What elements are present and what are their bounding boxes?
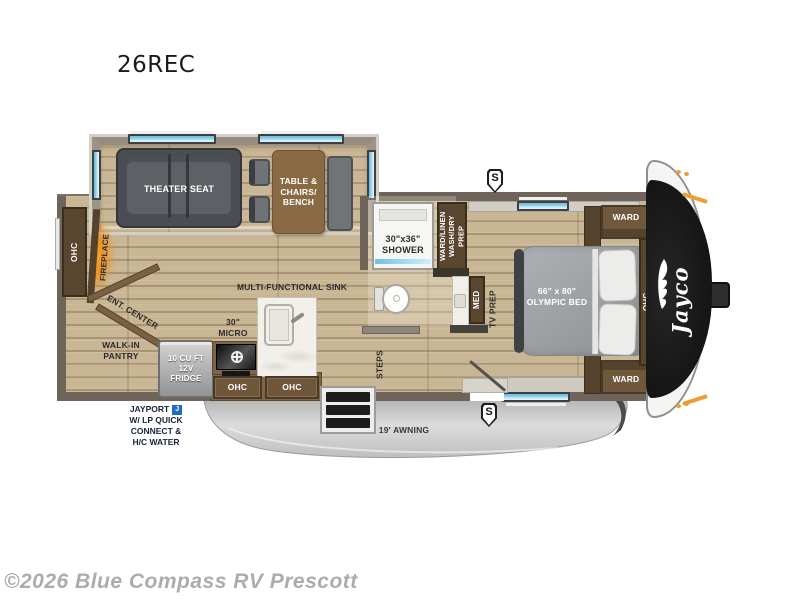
theater-seat-label: THEATER SEAT (118, 184, 240, 195)
dinette-chair (249, 196, 270, 223)
slide-window-1 (128, 134, 216, 144)
dinette-label-line: CHAIRS/ (280, 187, 316, 198)
bed-label-line: OLYMPIC BED (520, 297, 594, 308)
jayport-label-line: W/ LP QUICK (98, 415, 214, 426)
kitchen-ohc-right: OHC (265, 376, 319, 399)
wardrobe-top: WARD (601, 205, 651, 239)
ward-linen-cabinet: WARD/LINEN WASH/DRY PREP (437, 202, 467, 270)
step-tread (326, 405, 370, 415)
bedroom-window-top-sill (519, 197, 567, 200)
ward-linen-label-line: WARD/LINEN (438, 204, 447, 268)
shower-label-line: SHOWER (382, 245, 424, 256)
jayport-label-line: H/C WATER (98, 437, 214, 448)
vanity-sink (454, 294, 466, 308)
shower-head-ledge (379, 209, 427, 221)
speaker-badge-letter: S (481, 403, 497, 427)
shower: 30"x36" SHOWER (372, 202, 434, 270)
fridge-label-line: FRIDGE (170, 374, 201, 384)
fridge-label-line: 12V (179, 364, 194, 374)
bath-wall-lower (362, 326, 420, 334)
marker-light (684, 402, 689, 406)
marker-light (676, 404, 681, 408)
pantry-label-line: WALK-IN (88, 340, 154, 351)
rear-ohc-cabinet: OHC (62, 207, 87, 297)
steps-label: STEPS (374, 342, 386, 388)
speaker-badge-bottom: S (481, 403, 497, 427)
entry-steps (320, 386, 376, 434)
dinette-chair (249, 159, 270, 186)
toilet-drain (393, 295, 400, 302)
kitchen-sink (264, 304, 294, 346)
pantry-label-line: PANTRY (88, 351, 154, 362)
step-tread (326, 392, 370, 402)
bath-wall-left (360, 196, 368, 270)
jayco-logo: Jayco (670, 244, 690, 356)
bed-pillow (598, 303, 637, 355)
fridge-label-line: 10 CU FT (168, 354, 204, 364)
marker-light (676, 170, 681, 174)
theater-seat: THEATER SEAT (116, 148, 242, 228)
jayport-label: JAYPORT (130, 404, 169, 415)
jayport-label-line: CONNECT & (98, 426, 214, 437)
rear-ohc-label: OHC (69, 212, 80, 292)
dinette-table: TABLE & CHAIRS/ BENCH (272, 150, 325, 234)
slide-window-left (92, 150, 101, 200)
slide-window-2 (258, 134, 344, 144)
ohc-label: OHC (282, 382, 302, 393)
kitchen-ohc-left: OHC (213, 376, 262, 399)
refrigerator: 10 CU FT 12V FRIDGE (158, 340, 214, 398)
med-label: MED (472, 279, 482, 321)
awning-shape (198, 398, 634, 474)
bed-pillow (598, 249, 637, 301)
dealer-watermark: ©2026 Blue Compass RV Prescott (4, 570, 358, 594)
step-tread (326, 418, 370, 428)
shower-label-line: 30"x36" (386, 234, 421, 245)
ward-label: WARD (603, 212, 649, 223)
dinette-label-line: BENCH (283, 197, 314, 208)
bedroom-window-bottom (502, 392, 570, 402)
dinette-label-line: TABLE & (280, 176, 318, 187)
ward-label: WARD (603, 374, 649, 385)
dinette-bench (327, 156, 353, 231)
jayport-callout: JAYPORT J W/ LP QUICK CONNECT & H/C WATE… (98, 404, 214, 448)
bedroom-window-top (517, 201, 569, 211)
tv-prep-label: TV PREP (487, 286, 499, 332)
rear-window (55, 218, 60, 270)
med-cabinet: MED (469, 276, 485, 324)
speaker-badge-top: S (487, 169, 503, 193)
microwave-range (216, 344, 256, 370)
walk-in-pantry-label: WALK-IN PANTRY (88, 340, 154, 361)
sink-label: MULTI-FUNCTIONAL SINK (217, 282, 367, 293)
bedroom-window-bottom-sill (506, 403, 566, 406)
toilet (382, 284, 410, 314)
med-base (450, 325, 488, 333)
shower-glass-door (375, 259, 431, 264)
door-opening (470, 393, 504, 401)
model-title: 26REC (117, 52, 195, 78)
slide-window-right (367, 150, 376, 200)
jayport-j-badge: J (172, 405, 182, 415)
burner-icon (231, 351, 243, 363)
marker-light (684, 172, 689, 176)
bed-label: 66" x 80" OLYMPIC BED (520, 286, 594, 307)
ward-linen-label-line: WASH/DRY PREP (447, 204, 466, 268)
speaker-badge-letter: S (487, 169, 503, 193)
ohc-label: OHC (228, 382, 248, 393)
bed-label-line: 66" x 80" (520, 286, 594, 297)
floorplan-page: 26REC 19' AWNING THEATER SEAT TABLE & CH… (0, 0, 800, 600)
